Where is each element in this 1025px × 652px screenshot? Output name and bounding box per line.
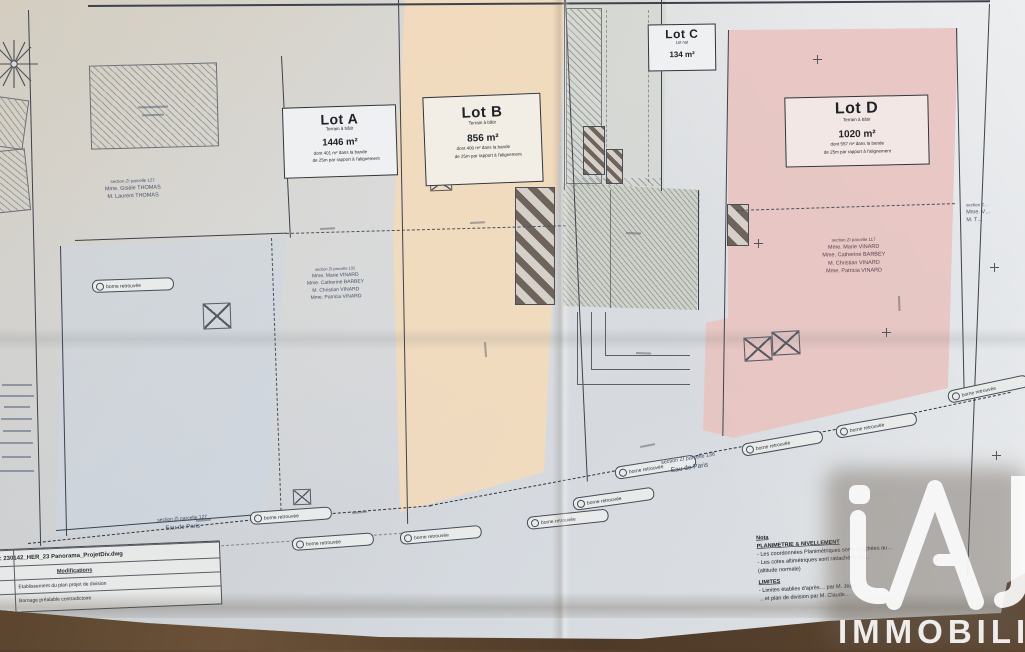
iad-a-shape [894,488,976,602]
lot-a-label-box: Lot A Terrain à bâtir 1446 m² dont 401 m… [282,104,398,179]
marker-number-circle [296,540,305,549]
marker-number-circle [839,426,848,435]
page: { "watermark": { "brand": "iad", "word":… [0,0,1025,650]
lot-c-area: 134 m² [649,51,715,61]
marker-number-circle [576,499,585,508]
fold-horizontal [0,328,1025,350]
marker-number-circle [951,391,960,400]
immobilier-wordmark: IMMOBILIER [838,613,1025,650]
lot-b-note: dont 400 m² dans la bande [454,144,512,151]
lot-c-title: Lot C [649,28,715,41]
lot-d-subtitle: Terrain à bâtir [821,116,892,123]
strip-structure-hatched-1 [583,126,605,175]
survey-cross [990,263,999,272]
survey-cross [813,55,822,64]
survey-cross [992,451,1001,460]
marker-number-circle [404,533,413,542]
lot-c-subtitle: Lot nat [667,40,697,45]
strip-tick-line-1 [606,10,607,182]
lot-d-title: Lot D [785,100,927,119]
strip-structure-hatched-2 [606,149,623,184]
lot-b-subtitle: Terrain à bâtir [453,119,511,126]
marker-number-circle [745,444,754,453]
lot-a-note: de 25m par rapport à l'alignement [313,156,369,163]
lot-b-label-box: Lot B Terrain à bâtir 856 m² dont 400 m²… [422,93,543,186]
north-arrow-icon [0,38,40,90]
lot-d-label-box: Lot D Terrain à bâtir 1020 m² dont 557 m… [784,94,929,167]
iad-d-stem [1002,478,1019,600]
modifications-header: Modifications [57,567,93,574]
lot-a-subtitle: Terrain à bâtir [312,125,368,132]
marker-number-circle [531,518,540,527]
iad-i-stem [858,518,882,596]
owner-block-parcel-127: section ZI parcelle 127 Mme. Gisèle THOM… [72,176,194,203]
lot-d-note: de 25m par rapport à l'alignement [822,148,893,155]
existing-building-hatched [515,187,555,305]
lot-d-area: 1020 m² [786,128,928,142]
marker-number-circle [96,282,104,290]
owner-block-edge-cut: section Z… Mme. V… M. T… [966,200,1025,224]
lot-a-area: 1446 m² [284,137,396,151]
neighbour-east-line [698,190,699,310]
marker-number-circle [618,468,627,477]
owner-block-parcel-117: section ZI parcelle 117 Mme. Marie VINAR… [782,236,926,277]
lot-d-note: dont 557 m² dans la bande [822,141,893,148]
lot-a-note: dont 401 m² dans la bande [312,149,368,156]
owner-block-parcel-132: section ZI parcelle 132 Mme. Marie VINAR… [280,264,391,303]
owner-name: M. T… [966,215,1025,225]
fold-vertical [552,0,570,650]
neighbour-mid-line [610,190,611,308]
iad-logo-watermark: IMMOBILIER [818,476,1025,652]
marker-number-circle [254,514,263,523]
lot-c-label-box: Lot C Lot nat 134 m² [648,24,717,72]
outbuilding-symbol [293,489,312,506]
survey-cross [754,239,763,248]
modification-row: Etablissement du plan projet de division [18,581,106,590]
outbuilding-symbol [203,303,232,330]
lot-b-note: de 25m par rapport à l'alignement [455,152,513,159]
iad-i-dot [849,485,870,504]
